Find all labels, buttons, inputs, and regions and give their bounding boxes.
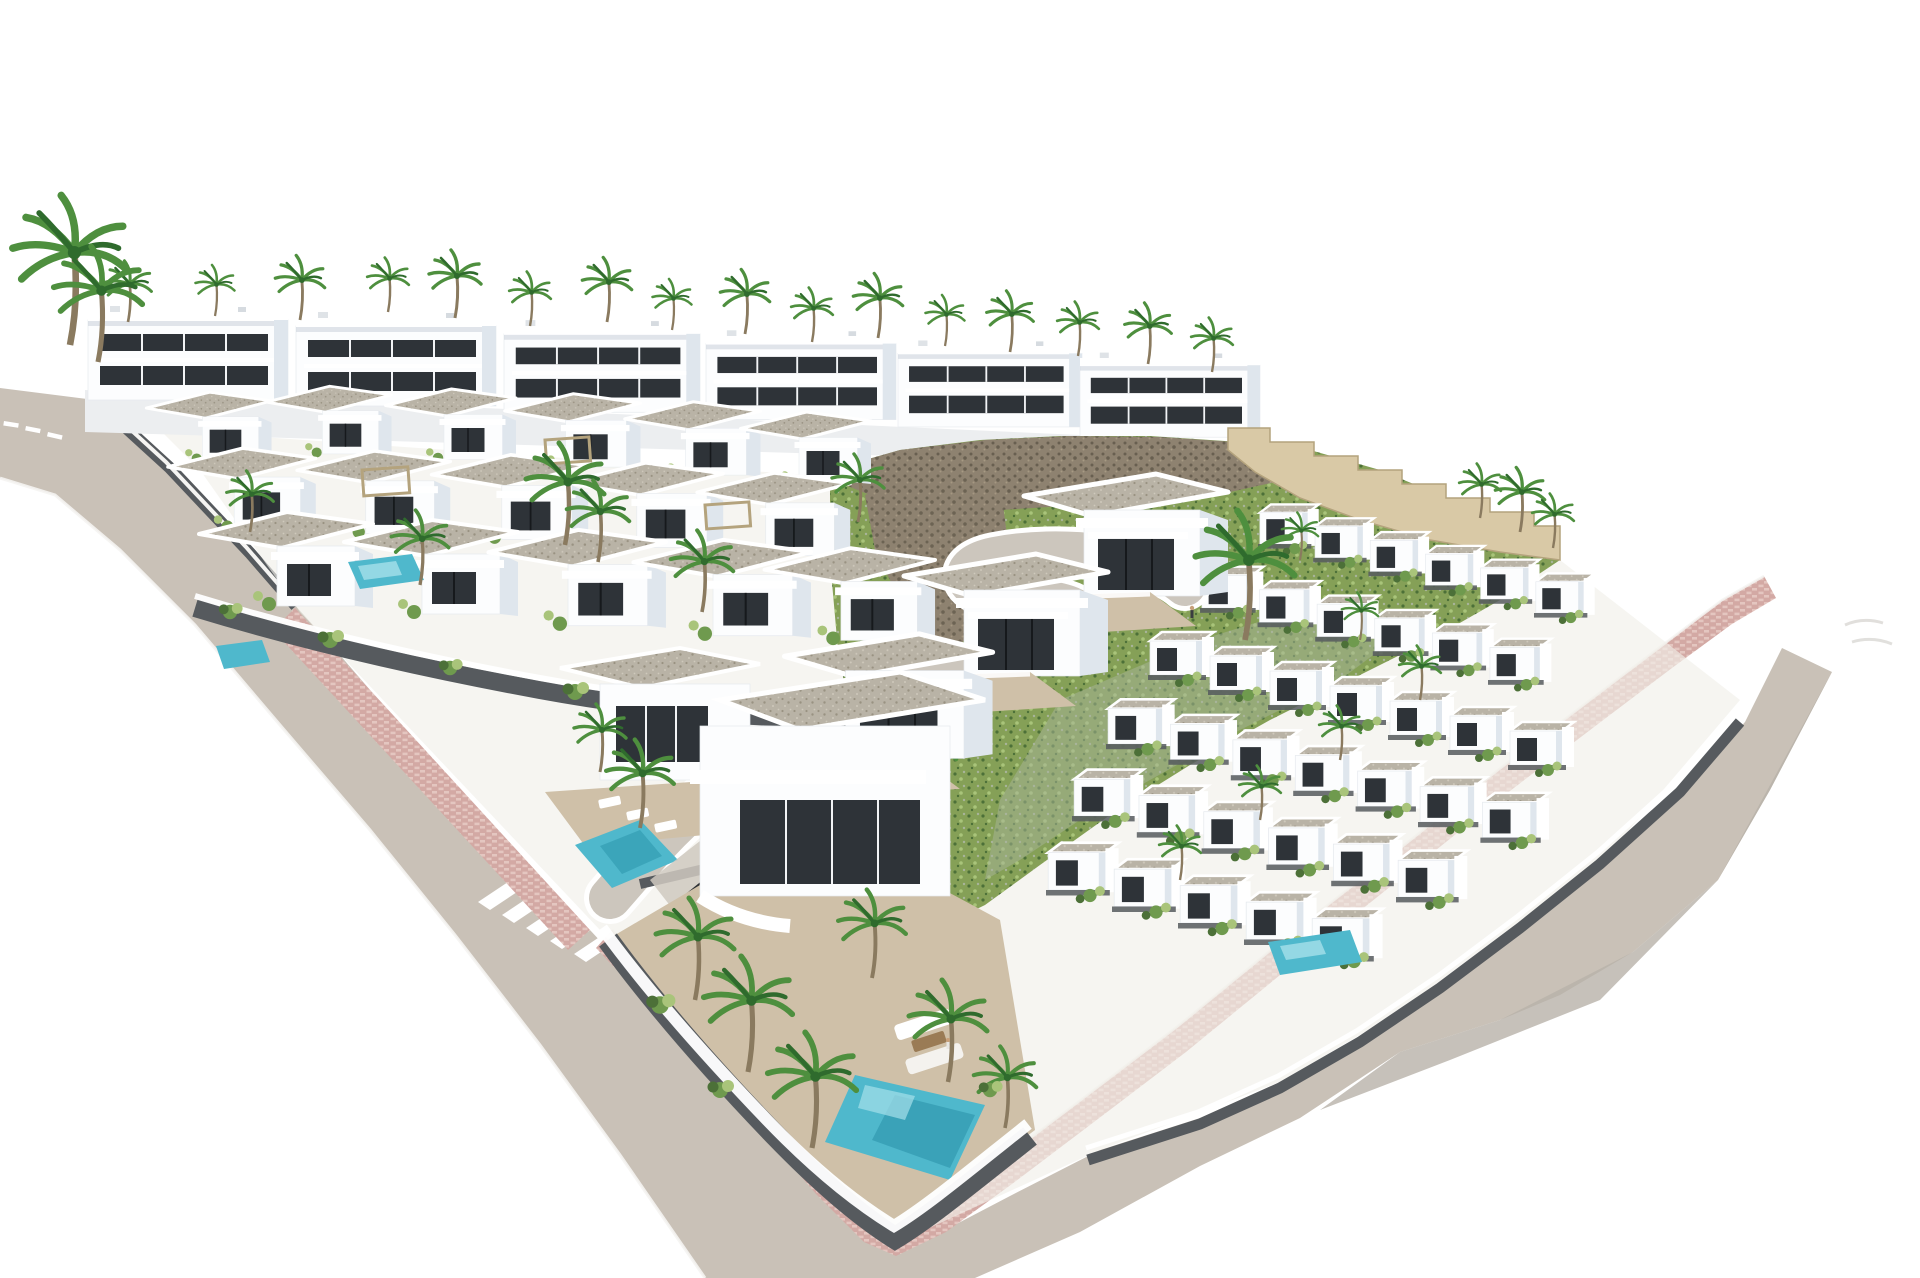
driveway-villa-glazing	[616, 706, 708, 762]
apartment-block	[898, 340, 1082, 426]
apartment-block	[1080, 353, 1260, 438]
corner-villa-balcony-band	[690, 770, 926, 784]
corner-villa-glazing	[740, 800, 920, 884]
render-canvas	[0, 0, 1920, 1278]
aerial-development-render	[0, 0, 1920, 1278]
person-figure	[946, 1038, 950, 1049]
apartment-block	[88, 306, 288, 400]
